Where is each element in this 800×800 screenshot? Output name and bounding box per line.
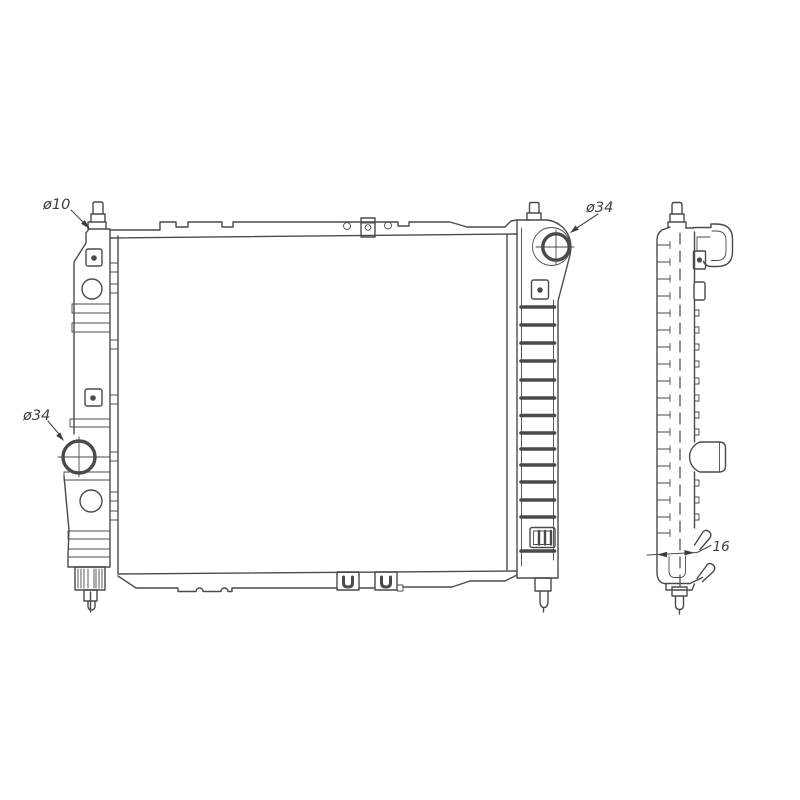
top-bar-hole-left (344, 223, 351, 230)
drain-plug (75, 567, 105, 612)
filler-neck (527, 203, 541, 221)
front-left-tank (58, 202, 118, 612)
drain-plug-knurling (78, 569, 102, 588)
elbow-inner (712, 231, 727, 261)
right-tank-vent-inner (534, 531, 552, 545)
core-top-bar (110, 220, 517, 238)
front-view (58, 202, 574, 612)
leader-top-right (578, 214, 599, 228)
elbow-bracket-dot (697, 257, 702, 262)
sensor-dot-upper-left (91, 255, 97, 261)
side-inlet-elbow (694, 224, 733, 269)
label-top-left-port-diameter: ø10 (42, 197, 70, 213)
side-bottom-pin (672, 587, 687, 614)
top-bar-hole-right (385, 222, 392, 229)
label-top-right-port-diameter: ø34 (585, 200, 613, 216)
left-tank-hole-upper (82, 279, 102, 299)
sensor-dot-lower-left (90, 395, 96, 401)
annotations: ø10 ø34 ø34 16 (22, 197, 730, 557)
front-right-tank (517, 203, 574, 613)
top-bar-bracket-hole (365, 225, 371, 231)
side-fins (657, 242, 670, 537)
left-tank-ribs (64, 304, 110, 557)
side-outlet-port (690, 442, 726, 472)
right-tank-mount-pin (535, 578, 551, 612)
label-left-port-diameter: ø34 (22, 408, 50, 424)
right-tank-vent-bars (539, 531, 551, 545)
top-bar-center-bracket (361, 218, 375, 237)
depth-arrow-right (685, 550, 695, 555)
side-bottom-cavity (669, 556, 686, 578)
elbow-pipe-bottom (697, 237, 710, 251)
sensor-dot-right (537, 287, 543, 293)
left-tank-hole-lower (80, 490, 102, 512)
left-tank-bleed-nozzle (88, 202, 106, 229)
right-tank-ribs (521, 307, 555, 551)
left-tank-clips (110, 263, 118, 520)
front-core (110, 218, 517, 592)
arrowhead-top-right (570, 226, 579, 234)
label-depth-dimension: 16 (713, 539, 730, 555)
side-body-outline (657, 227, 694, 584)
side-bottom-plate (664, 578, 703, 591)
core-bottom-bar (118, 571, 517, 592)
radiator-technical-drawing: ø10 ø34 ø34 16 (0, 0, 800, 800)
drain-plug-body (75, 567, 105, 590)
drain-plug-pin (84, 590, 97, 612)
mounting-feet-slots (344, 577, 391, 587)
side-mount-tab (694, 282, 705, 300)
depth-arrow-left (657, 552, 667, 557)
arrowhead-left (56, 432, 64, 441)
outlet-port-outline (690, 442, 726, 472)
radiator-drawing-svg: ø10 ø34 ø34 16 (0, 0, 800, 800)
bottom-bar-tab (397, 585, 403, 591)
leader-top-left (71, 210, 83, 222)
side-top-pin (668, 203, 686, 229)
